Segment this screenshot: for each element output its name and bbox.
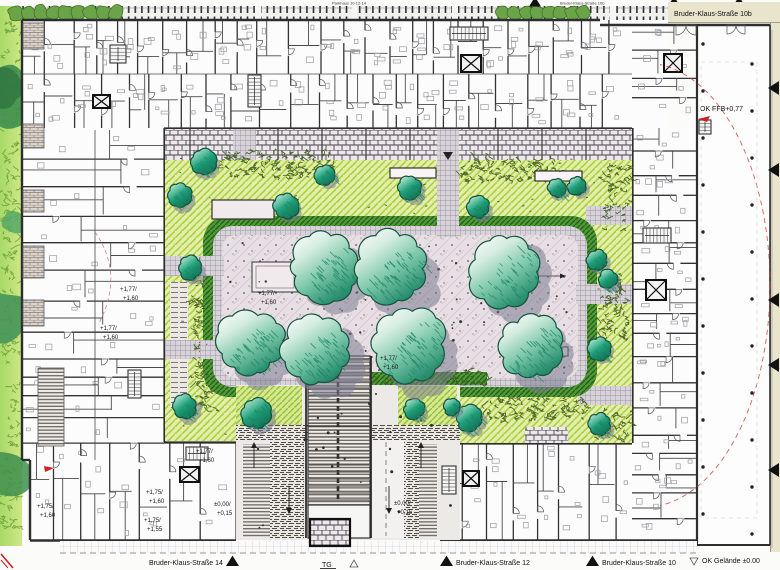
svg-text:Bruder-Klaus-Straße 10: Bruder-Klaus-Straße 10 [602, 560, 676, 567]
svg-text:+1,77/: +1,77/ [380, 356, 397, 362]
svg-text:+0,15: +0,15 [217, 511, 233, 517]
svg-text:+1,75/: +1,75/ [146, 490, 163, 496]
svg-text:Bruder-Klaus-Straße 14: Bruder-Klaus-Straße 14 [149, 560, 223, 567]
svg-text:+1,75/: +1,75/ [37, 504, 54, 510]
svg-text:Bruder-Klaus-Straße 10b: Bruder-Klaus-Straße 10b [560, 1, 605, 6]
svg-text:Bruder-Klaus-Straße 10b: Bruder-Klaus-Straße 10b [674, 11, 752, 18]
svg-text:+1,77/: +1,77/ [100, 326, 117, 332]
svg-text:+1,60: +1,60 [103, 335, 119, 341]
svg-text:+1,60: +1,60 [199, 458, 215, 464]
svg-text:OK FFB+0,77: OK FFB+0,77 [700, 106, 743, 113]
svg-text:Bruder-Klaus-Straße 12: Bruder-Klaus-Straße 12 [456, 560, 530, 567]
svg-text:+1,60: +1,60 [149, 499, 165, 505]
svg-text:+1,60: +1,60 [40, 513, 56, 519]
svg-text:+1,60: +1,60 [261, 300, 277, 306]
svg-text:+1,75/: +1,75/ [144, 518, 161, 524]
svg-text:TG: TG [322, 562, 332, 569]
svg-text:+0,15: +0,15 [397, 510, 413, 516]
svg-text:+1,77/: +1,77/ [258, 291, 275, 297]
svg-text:Parkhaus 10-12-14: Parkhaus 10-12-14 [332, 1, 367, 6]
svg-text:±0,00/: ±0,00/ [214, 502, 231, 508]
svg-text:+1,55: +1,55 [147, 527, 163, 533]
svg-text:+1,60: +1,60 [123, 296, 139, 302]
svg-text:+1,77/: +1,77/ [196, 449, 213, 455]
svg-text:+1,77/: +1,77/ [120, 287, 137, 293]
svg-text:OK Gelände ±0.00: OK Gelände ±0.00 [702, 558, 760, 565]
svg-text:+1,60: +1,60 [383, 365, 399, 371]
svg-text:±0,00/: ±0,00/ [394, 501, 411, 507]
